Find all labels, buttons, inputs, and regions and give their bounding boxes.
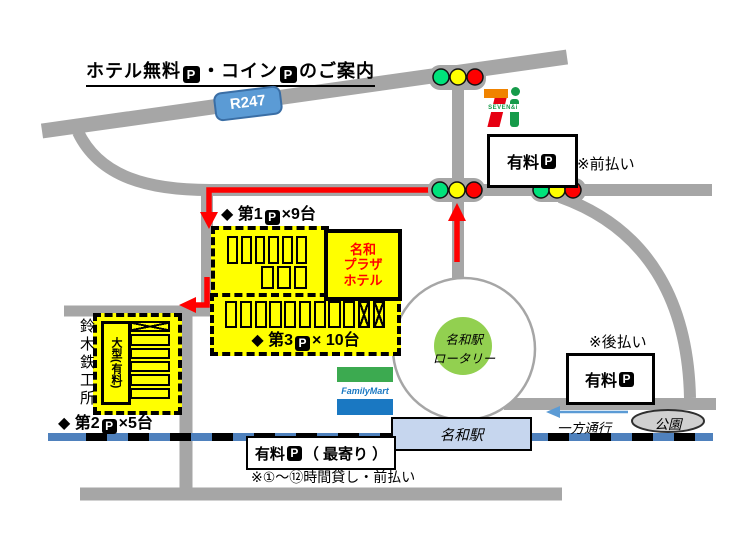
lot1-stalls-bottom <box>261 266 307 289</box>
prepaid-note: ※前払い <box>577 153 635 174</box>
traffic-light-center <box>428 178 485 202</box>
parking-stall <box>261 266 274 289</box>
parking-icon: P <box>541 154 556 169</box>
parking-stall <box>282 236 293 264</box>
lot2-large-paid-box: 大型(有料) <box>101 321 131 405</box>
paid-parking-nearest-box: 有料P（ 最寄り ） <box>246 436 396 470</box>
lot1-stalls-top <box>227 236 307 264</box>
page-title: ホテル無料P・コインPのご案内 <box>86 57 375 87</box>
paid-parking-east-box: 有料P <box>566 353 655 405</box>
parking-icon: P <box>287 446 302 461</box>
familymart-wordmark: FamilyMart <box>337 382 393 399</box>
one-way-label: 一方通行 <box>557 417 611 437</box>
seven-eleven-logo: SEVEN&i <box>484 87 522 129</box>
lot3-label: ◆ 第3P× 10台 <box>214 326 397 351</box>
parking-stall <box>255 301 267 328</box>
parking-stall <box>358 301 370 328</box>
parking-icon: P <box>183 66 200 83</box>
traffic-light-north <box>429 65 486 90</box>
parking-icon: P <box>619 372 634 387</box>
nawa-station-box: 名和駅 <box>391 417 532 451</box>
familymart-green-bar <box>337 367 393 382</box>
parking-stall <box>227 236 238 264</box>
lot2-label: ◆ 第2P×5台 <box>58 409 153 434</box>
parking-icon: P <box>295 336 310 351</box>
parking-stall <box>130 361 170 372</box>
lot1-label: ◆ 第1P×9台 <box>221 200 316 225</box>
parking-icon: P <box>280 66 297 83</box>
parking-stall <box>296 236 307 264</box>
parking-stall <box>268 236 279 264</box>
seven-wordmark: SEVEN&i <box>482 104 524 112</box>
seven-stem <box>487 98 506 127</box>
parking-stall <box>269 301 281 328</box>
parking-stall <box>255 236 266 264</box>
parking-stall <box>130 321 170 332</box>
familymart-logo: FamilyMart <box>337 367 393 415</box>
parking-stall <box>240 301 252 328</box>
parking-stall <box>294 266 307 289</box>
parking-stall <box>130 388 170 399</box>
parking-stall <box>130 348 170 359</box>
parking-stall <box>225 301 237 328</box>
parking-lot-1 <box>211 226 329 301</box>
postpaid-note: ※後払い <box>589 331 647 352</box>
parking-lot-3: ◆ 第3P× 10台 <box>210 293 401 356</box>
seven-i-dot <box>511 87 520 96</box>
seven-top-bar <box>484 89 508 98</box>
park-label: 公園 <box>637 413 699 433</box>
nawa-plaza-hotel-box: 名和 プラザ ホテル <box>324 229 402 301</box>
parking-stall <box>130 374 170 385</box>
paid-parking-north-box: 有料P <box>487 134 578 188</box>
parking-stall <box>314 301 326 328</box>
parking-stall <box>284 301 296 328</box>
parking-stall <box>130 334 170 345</box>
parking-stall <box>299 301 311 328</box>
parking-stall <box>373 301 385 328</box>
parking-stall <box>343 301 355 328</box>
parking-icon: P <box>102 419 117 434</box>
parking-lot-2: 大型(有料) <box>93 313 182 415</box>
parking-guide-map: ホテル無料P・コインPのご案内 R247 SEVEN&i 有料P ※前払い ◆ … <box>0 0 754 533</box>
hourly-prepaid-note: ※①～⑫時間貸し・前払い <box>251 467 415 487</box>
parking-stall <box>277 266 290 289</box>
suzuki-ironworks-label: 鈴木鉄工所 <box>76 318 97 414</box>
rotary-label: 名和駅 ロータリー <box>412 331 516 369</box>
familymart-blue-bar <box>337 399 393 415</box>
parking-stall <box>328 301 340 328</box>
lot3-stalls <box>225 301 385 328</box>
parking-stall <box>241 236 252 264</box>
lot2-stalls <box>130 321 170 399</box>
parking-icon: P <box>265 210 280 225</box>
